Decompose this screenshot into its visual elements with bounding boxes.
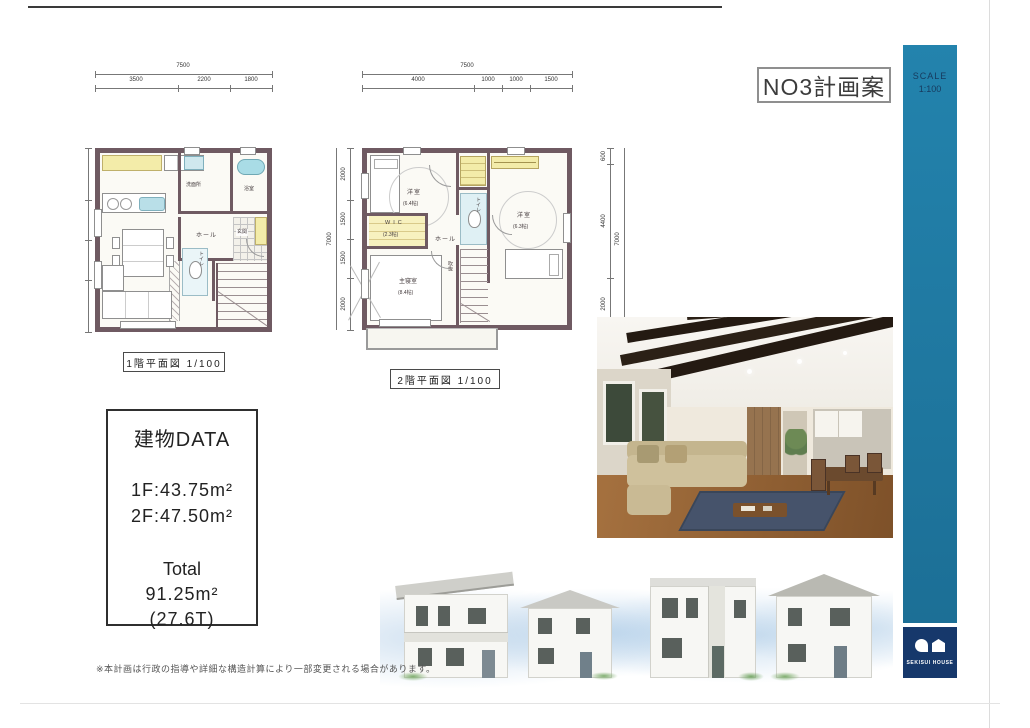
dim-2f-right-seg: 2000 — [601, 297, 607, 310]
table-decor — [763, 506, 772, 511]
scanned-plan-sheet: NO3計画案 SCALE 1:100 SEKISUI HOUSE 7500 35… — [0, 0, 1030, 728]
sofa — [102, 291, 172, 319]
footer-note: ※本計画は行政の指導や詳細な構造計算により一部変更される場合があります。 — [96, 662, 435, 675]
dim-2f-right-seg: 600 — [601, 151, 607, 161]
room-label-bedroom2: 洋室 — [517, 213, 531, 219]
dim-tick — [347, 330, 354, 331]
dining-chair — [867, 453, 882, 473]
room-label-wic: WIC — [385, 221, 405, 227]
door-swing — [492, 215, 512, 235]
closet — [460, 156, 486, 186]
kitchen-sink — [139, 197, 165, 211]
dim-tick — [85, 332, 92, 333]
building-data-title: 建物DATA — [134, 423, 230, 452]
house-window — [446, 648, 464, 666]
house-rendering-2 — [520, 590, 620, 682]
house-window — [686, 598, 698, 618]
wall — [456, 187, 488, 190]
dim-tick — [95, 85, 96, 92]
building-data-1f: 1F:43.75m² — [131, 480, 233, 501]
dining-chair — [811, 459, 826, 491]
dim-tick — [272, 71, 273, 78]
window — [94, 209, 102, 237]
coffee-table — [733, 503, 787, 517]
exterior-renderings — [380, 556, 893, 688]
window — [403, 147, 421, 155]
building-data-box: 建物DATA 1F:43.75m² 2F:47.50m² Total 91.25… — [106, 409, 258, 626]
building-data-total-tsubo: (27.6T) — [149, 609, 214, 630]
dining-chair — [166, 255, 174, 267]
dim-line — [95, 88, 272, 89]
wall — [425, 213, 428, 249]
dim-1f-seg: 3500 — [129, 77, 142, 83]
dim-2f-seg: 4000 — [411, 77, 424, 83]
dim-tick — [272, 85, 273, 92]
scale-sidebar: SCALE 1:100 — [903, 45, 957, 623]
balcony-band — [404, 632, 508, 642]
dim-tick — [607, 148, 614, 149]
dim-1f-total: 7500 — [176, 63, 189, 69]
window — [240, 147, 256, 155]
sofa-chaise — [627, 485, 671, 515]
house-window — [788, 644, 806, 662]
bed-pillow — [374, 159, 398, 169]
dim-tick — [474, 85, 475, 92]
dim-2f-left-seg: 1500 — [341, 212, 347, 225]
wall — [178, 211, 267, 214]
room-label-hall: ホール — [196, 233, 217, 239]
dining-chair — [845, 455, 860, 473]
dim-line — [336, 148, 337, 330]
dim-tick — [230, 85, 231, 92]
left-window — [603, 381, 635, 445]
interior-rendering — [597, 317, 893, 538]
plan-title: NO3計画案 — [763, 68, 885, 102]
dining-table-leg — [827, 481, 830, 495]
dim-line — [362, 88, 572, 89]
dim-tick — [607, 278, 614, 279]
room-label-washroom: 洗面所 — [186, 183, 201, 188]
room-label-master: 主寝室 — [399, 279, 417, 285]
window — [120, 321, 176, 329]
dim-tick — [362, 71, 363, 78]
building-data-2f: 2F:47.50m² — [131, 506, 233, 527]
dim-tick — [85, 200, 92, 201]
dim-tick — [347, 148, 354, 149]
dim-1f-seg: 2200 — [197, 77, 210, 83]
house-window — [468, 608, 486, 624]
sofa-chaise — [102, 265, 124, 291]
toilet-room — [460, 193, 487, 245]
room-label-bedroom1: 洋室 — [407, 190, 421, 196]
building-data-total-area: 91.25m² — [145, 584, 218, 605]
dim-tick — [502, 85, 503, 92]
house-window — [734, 600, 746, 618]
closet-rod — [494, 162, 536, 163]
bathtub — [237, 159, 265, 175]
wall — [178, 153, 181, 211]
dim-tick — [347, 278, 354, 279]
house-window — [788, 608, 802, 626]
house-door — [834, 646, 847, 678]
window — [361, 173, 369, 199]
room-label-toilet-2f: トイレ — [475, 197, 480, 212]
house-window — [662, 638, 682, 658]
bed — [505, 249, 563, 279]
window — [94, 261, 102, 289]
room-label-master-size: (8.4帖) — [398, 291, 413, 296]
stove-burner — [107, 198, 119, 210]
dining-table-leg — [873, 481, 876, 495]
toilet — [468, 210, 481, 228]
window — [507, 147, 525, 155]
dim-2f-seg: 1500 — [544, 77, 557, 83]
plant — [785, 429, 807, 459]
house-rendering-4 — [768, 574, 880, 682]
dim-2f-right-seg: 4400 — [601, 214, 607, 227]
dining-chair — [112, 237, 120, 249]
dim-1f-seg: 1800 — [244, 77, 257, 83]
washstand — [184, 156, 204, 170]
dim-tick — [85, 240, 92, 241]
dim-line — [362, 74, 572, 75]
ceiling-light — [747, 369, 752, 374]
bush — [590, 672, 618, 680]
closet — [491, 156, 539, 169]
room-label-wic-size: (2.3帖) — [383, 233, 398, 238]
room-label-bedroom1-size: (6.4帖) — [403, 202, 418, 207]
balcony — [366, 328, 498, 350]
sekisui-logo-box: SEKISUI HOUSE — [903, 627, 957, 678]
window — [563, 213, 571, 243]
kitchen-unit — [102, 193, 166, 213]
house-door — [482, 650, 495, 678]
dining-table — [122, 229, 164, 277]
ceiling-light — [797, 359, 802, 364]
dim-line — [95, 74, 272, 75]
house-window — [830, 608, 850, 626]
dim-tick — [572, 85, 573, 92]
brand-name: SEKISUI HOUSE — [903, 660, 957, 666]
logo-house-icon — [932, 639, 945, 652]
floorplan-1f: 洗面所 浴室 ホール 玄関 トイレ 上部吹抜 LDK (16.4帖) — [95, 148, 272, 332]
window — [361, 269, 369, 299]
window — [184, 147, 200, 155]
house-window — [576, 618, 590, 634]
room-label-bath: 浴室 — [244, 187, 254, 192]
floorplan-2f: 洋室 (6.4帖) トイレ ホール 洋室 (6.3帖) WIC (2.3帖) — [362, 148, 572, 330]
ceiling-light — [843, 351, 847, 355]
wall — [456, 153, 459, 215]
dim-2f-seg: 1000 — [481, 77, 494, 83]
dim-tick — [530, 85, 531, 92]
room-label-hall-2f: ホール — [435, 237, 456, 243]
wood-accent-panel — [747, 407, 781, 481]
stove-burner — [120, 198, 132, 210]
dim-tick — [572, 71, 573, 78]
wall — [230, 153, 233, 211]
house-window — [416, 606, 428, 626]
dim-tick — [85, 280, 92, 281]
house-window — [662, 598, 678, 618]
dim-line — [624, 148, 625, 330]
house-window — [538, 618, 552, 634]
bush — [738, 672, 764, 681]
house-window — [538, 648, 554, 664]
kitchen-counter — [102, 155, 162, 171]
table-decor — [741, 506, 755, 511]
caption-2f-text: 2階平面図 1/100 — [397, 372, 492, 387]
building-data-total-label: Total — [163, 559, 201, 580]
dim-tick — [85, 148, 92, 149]
plan-title-box: NO3計画案 — [757, 67, 891, 103]
bed-master — [370, 255, 442, 321]
sofa-cushion — [637, 445, 659, 463]
scale-label: SCALE — [903, 71, 957, 81]
wall — [367, 246, 427, 249]
dim-2f-left-seg: 1500 — [341, 251, 347, 264]
bush — [770, 672, 800, 681]
roof — [768, 574, 880, 596]
dim-line — [610, 148, 611, 330]
caption-1f: 1階平面図 1/100 — [123, 352, 225, 372]
dim-2f-left-seg: 2000 — [341, 167, 347, 180]
left-window — [639, 389, 667, 445]
house-window — [438, 606, 450, 626]
scan-edge-right — [989, 0, 990, 728]
dim-tick — [362, 85, 363, 92]
caption-2f: 2階平面図 1/100 — [390, 369, 500, 389]
dining-chair — [166, 237, 174, 249]
logo-leaf-icon — [915, 639, 928, 652]
house-door — [712, 646, 724, 678]
caption-1f-text: 1階平面図 1/100 — [126, 355, 221, 370]
dim-tick — [178, 85, 179, 92]
house-rendering-3 — [648, 578, 758, 682]
bed-pillow — [549, 254, 559, 276]
dim-2f-total-top: 7500 — [460, 63, 473, 69]
toilet-room — [182, 248, 208, 296]
window — [379, 319, 431, 327]
dim-tick — [607, 164, 614, 165]
dim-2f-seg: 1000 — [509, 77, 522, 83]
dim-tick — [347, 200, 354, 201]
scale-value: 1:100 — [903, 84, 957, 94]
wall — [212, 261, 215, 301]
room-label-entrance: 玄関 — [236, 229, 248, 236]
dim-tick — [347, 239, 354, 240]
room-label-toilet: トイレ — [198, 251, 203, 266]
dim-2f-left-seg: 2000 — [341, 297, 347, 310]
scan-edge-bottom — [20, 703, 1000, 704]
dim-2f-total-left: 7000 — [327, 232, 333, 245]
dim-tick — [95, 71, 96, 78]
room-label-bedroom2-size: (6.3帖) — [513, 225, 528, 230]
dim-2f-total-right: 7000 — [615, 232, 621, 245]
wall — [178, 217, 181, 261]
roof — [520, 590, 620, 608]
wall — [456, 245, 459, 325]
scan-edge-top — [28, 6, 722, 8]
sofa-cushion — [665, 445, 687, 463]
